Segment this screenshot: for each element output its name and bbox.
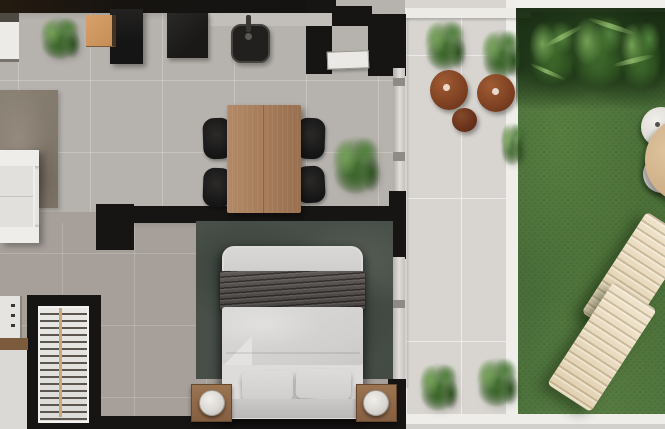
entry-door [327,50,370,69]
sideboard-bottom-edge [0,59,19,62]
patio-bush-2 [472,352,522,412]
nook-wood-counter [0,338,28,350]
hedge-overhang [498,118,526,170]
bottom-edge-wall [404,414,665,424]
bed-pillow-right [296,368,352,399]
bed-pillow-left [242,370,294,401]
sofa-armrest-bottom [0,227,39,243]
appliance-knob-2 [11,314,15,317]
sliding-glass-lower [392,257,405,381]
appliance-knob-3 [11,324,15,327]
glass-mullion-2 [393,152,405,161]
glass-mullion-1 [393,78,405,86]
laundry-appliance [0,296,22,338]
sofa-seat-seam [0,196,33,197]
sliding-glass-upper [393,68,405,193]
terracotta-pot-3 [452,108,477,132]
lamp-right [363,390,389,416]
sideboard-white-panel [0,22,19,59]
patio-bush-1 [415,358,462,416]
top-wall [0,0,336,13]
dining-table [227,105,301,213]
bed-duvet-crease [226,352,360,354]
dining-table-seam [263,105,264,213]
floor-plan-render [0,0,665,429]
bottom-edge-walk [404,424,665,429]
dining-plant [327,130,385,200]
bed-throw-blanket [220,271,365,310]
kitchen-cooktop [167,13,208,58]
wood-stool [86,15,116,47]
living-plant [36,12,84,64]
closet-center-rail [59,308,62,417]
glass-mullion-3 [392,300,405,308]
pot-drain-dot-2 [492,88,499,95]
sofa-armrest-top [0,150,39,166]
nook-white-floor [0,350,27,429]
sideboard-top-edge [0,13,19,22]
entry-wall-right [368,14,406,76]
patio-wall-shadow [406,8,410,388]
sink-faucet [246,15,251,32]
hedge-palm-3 [616,14,665,96]
lamp-left [199,390,225,416]
closet-slatted-unit [38,306,89,423]
kitchen-counter-strip [210,13,332,26]
patio-planter-edge [405,8,531,18]
terracotta-pot-1 [430,70,468,110]
sink-faucet-base [245,33,252,40]
patio-palm-1 [420,14,470,76]
appliance-knob-1 [11,304,15,307]
pot-drain-dot-1 [443,84,450,91]
entry-wall-beam [330,6,372,26]
bed-headboard [227,399,359,418]
